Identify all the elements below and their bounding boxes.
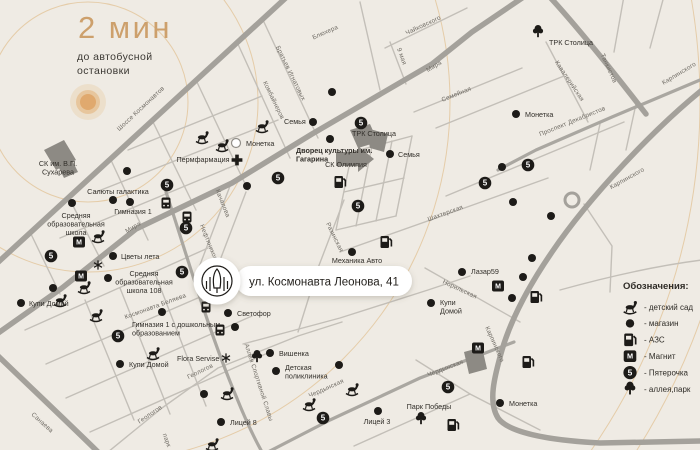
shop-dot-icon — [427, 299, 435, 307]
shop-dot-icon — [509, 198, 517, 206]
poi-name-label: ТРК Столица — [549, 38, 593, 47]
street-minor — [336, 216, 396, 230]
street-name-label: Семейная — [440, 85, 472, 104]
poi-name-label: Лицей 3 — [364, 417, 391, 426]
poi-name-label: Лицей 8 — [230, 418, 257, 427]
svg-text:М: М — [495, 283, 501, 290]
kindergarten-rocking-horse-icon — [78, 281, 91, 293]
pyaterochka-icon: 5 — [522, 159, 535, 172]
street-name-label: Блюхера — [311, 24, 339, 42]
walk-time-caption-line2: остановки — [77, 65, 130, 77]
gas-station-icon — [335, 176, 346, 188]
poi-name-label: Монетка — [525, 110, 553, 119]
kindergarten-rocking-horse-icon — [624, 301, 637, 314]
legend-title: Обозначения: — [623, 281, 689, 292]
shop-dot-icon — [224, 309, 232, 317]
pyaterochka-icon: 5 — [442, 381, 455, 394]
street-name-label: Мира — [425, 59, 443, 74]
svg-text:5: 5 — [116, 332, 121, 341]
shop-dot-icon — [109, 252, 117, 260]
street-name-label: 9 мая — [395, 47, 408, 66]
shop-dot-icon — [547, 212, 555, 220]
magnit-icon: М — [492, 281, 504, 292]
shop-dot-icon — [243, 182, 251, 190]
poi-name-label: Семья — [284, 117, 306, 126]
kindergarten-rocking-horse-icon — [147, 347, 160, 359]
shop-dot-icon — [528, 254, 536, 262]
road-main — [547, 0, 646, 114]
shop-dot-icon — [158, 308, 166, 316]
shop-dot-icon — [200, 390, 208, 398]
street-minor — [590, 124, 600, 170]
svg-text:5: 5 — [180, 268, 185, 277]
poi-name-label: Детскаяполиклиника — [285, 363, 328, 381]
street-minor — [650, 0, 664, 48]
kindergarten-rocking-horse-icon — [206, 438, 219, 450]
gas-station-icon — [523, 356, 534, 368]
svg-text:5: 5 — [359, 119, 364, 128]
street-name-label: Геологов — [137, 404, 164, 426]
shop-dot-icon — [126, 198, 134, 206]
svg-text:5: 5 — [321, 414, 326, 423]
walk-time-caption-line1: до автобусной — [77, 51, 152, 63]
pyaterochka-icon: 5 — [176, 266, 189, 279]
shop-dot-icon — [519, 273, 527, 281]
walk-time-badge: 2 мин до автобусной остановки — [70, 10, 172, 120]
walk-distance-map: Шоссе КосмонавтовМираМираБратьев Игнатов… — [0, 0, 700, 450]
pyaterochka-icon: 5 — [623, 366, 636, 379]
magnit-icon: М — [472, 343, 484, 354]
pyaterochka-icon: 5 — [355, 117, 368, 130]
legend-item: - аллея,парк — [625, 382, 691, 395]
shop-dot-icon — [266, 349, 274, 357]
street-name-label: Нефтяников — [198, 223, 219, 261]
shop-dot-icon — [309, 118, 317, 126]
legend-item: - магазин — [626, 319, 679, 328]
poi-name-label: Вишенка — [279, 349, 309, 358]
shop-dot-icon — [498, 163, 506, 171]
poi-name-label: СК Олимпия — [325, 160, 367, 169]
bus-stop-icon — [183, 212, 192, 223]
gas-station-icon — [448, 419, 459, 431]
street-minor — [446, 122, 624, 196]
shop-dot-icon — [17, 299, 25, 307]
magnit-icon: М — [73, 237, 85, 248]
svg-text:5: 5 — [165, 181, 170, 190]
poi-name-label: ТРК Столица — [352, 129, 396, 138]
shop-dot-icon — [104, 274, 112, 282]
map-legend: Обозначения: - детский сад- магазин- АЗС… — [623, 281, 693, 394]
poi-name-label: Средняяобразовательнаяшкола — [47, 211, 105, 237]
poi-name-label: КупиДомой — [440, 298, 462, 316]
park-tree-icon — [533, 25, 543, 37]
street-name-label: Чайковского — [404, 13, 442, 37]
street-name-label: Кавалерийская — [553, 59, 586, 103]
shop-dot-icon — [49, 284, 57, 292]
svg-text:5: 5 — [446, 383, 451, 392]
poi-name-label: Средняяобразовательнаяшкола 108 — [115, 269, 173, 295]
legend-item-label: - аллея,парк — [644, 385, 691, 394]
bus-stop-icon — [162, 198, 171, 209]
poi-name-label: Flora Servise — [177, 354, 219, 363]
poi-name-label: Лазар59 — [471, 267, 499, 276]
legend-item-label: - магазин — [644, 319, 679, 328]
svg-text:5: 5 — [483, 179, 488, 188]
svg-text:5: 5 — [49, 252, 54, 261]
shop-dot-icon — [68, 199, 76, 207]
shop-dot-icon — [335, 361, 343, 369]
street-minor — [584, 204, 612, 292]
poi-name-label: Купи Домой — [129, 360, 169, 369]
gas-station-icon — [381, 236, 392, 248]
map-canvas: Шоссе КосмонавтовМираМираБратьев Игнатов… — [0, 0, 700, 450]
street-labels: Шоссе КосмонавтовМираМираБратьев Игнатов… — [30, 13, 698, 448]
pyaterochka-icon: 5 — [180, 222, 193, 235]
pyaterochka-icon: 5 — [352, 200, 365, 213]
poi-name-label: Салюты галактика — [87, 187, 149, 196]
shop-dot-icon — [231, 323, 239, 331]
magnit-icon: М — [75, 271, 87, 282]
pharmacy-cross-icon — [232, 155, 243, 166]
pyaterochka-icon: 5 — [272, 172, 285, 185]
shop-dot-icon — [508, 294, 516, 302]
pyaterochka-icon: 5 — [45, 250, 58, 263]
pyaterochka-icon: 5 — [112, 330, 125, 343]
shop-dot-icon — [496, 399, 504, 407]
shop-dot-icon — [328, 88, 336, 96]
kindergarten-rocking-horse-icon — [196, 131, 209, 143]
svg-text:М: М — [475, 345, 481, 352]
street-name-label: Братьев Игнатовых — [274, 45, 307, 103]
shop-dot-icon — [458, 268, 466, 276]
legend-item-label: - Пятерочка — [644, 368, 689, 377]
svg-text:М: М — [78, 273, 84, 280]
poi-name-label: Пермфармация — [177, 155, 230, 164]
gas-station-icon — [624, 334, 635, 347]
street-minor — [436, 76, 564, 128]
street-name-label: Танкистов — [599, 53, 618, 85]
street-name-label: Комбайнеров — [261, 80, 287, 121]
shop-dot-icon — [272, 367, 280, 375]
shop-dot-icon — [217, 418, 225, 426]
shop-dot-icon — [123, 167, 131, 175]
legend-item: - АЗС — [624, 334, 665, 347]
shop-open-dot-icon — [232, 139, 241, 148]
shop-dot-icon — [116, 360, 124, 368]
poi-name-label: Гимназия 1 с дошкольнымобразованием — [132, 320, 220, 338]
svg-text:М: М — [627, 352, 633, 361]
pyaterochka-icon: 5 — [317, 412, 330, 425]
poi-name-label: Парк Победы — [407, 402, 452, 411]
street-name-label: Карпинского — [609, 166, 646, 191]
svg-text:5: 5 — [628, 367, 633, 377]
poi-name-label: Купи Домой — [29, 299, 69, 308]
street-minor — [360, 2, 380, 90]
street-name-label: парк — [161, 433, 172, 449]
street-name-label: Шахтерская — [427, 204, 464, 223]
svg-text:5: 5 — [526, 161, 531, 170]
kindergarten-rocking-horse-icon — [256, 120, 269, 132]
shop-dot-icon — [626, 319, 634, 327]
road-main — [0, 352, 98, 450]
legend-item-label: - Магнит — [644, 352, 676, 361]
roundabout — [565, 193, 579, 207]
poi-name-label: Гимназия 1 — [114, 207, 152, 216]
street-minor — [396, 136, 412, 216]
svg-text:М: М — [76, 239, 82, 246]
bus-stop-point — [80, 94, 96, 110]
shop-dot-icon — [326, 135, 334, 143]
shop-dot-icon — [374, 407, 382, 415]
poi-name-label: Цветы лета — [121, 252, 159, 261]
street-name-label: Санаева — [30, 411, 55, 434]
legend-item-label: - АЗС — [644, 336, 665, 345]
poi-name-label: Монетка — [246, 139, 274, 148]
shop-dot-icon — [348, 248, 356, 256]
legend-item-label: - детский сад — [644, 303, 693, 312]
pyaterochka-icon: 5 — [161, 179, 174, 192]
street-name-label: Чердынская — [308, 378, 345, 400]
walk-time-value: 2 мин — [78, 10, 172, 45]
kindergarten-rocking-horse-icon — [221, 387, 234, 399]
magnit-icon: М — [624, 350, 637, 362]
street-minor — [614, 0, 624, 52]
shop-dot-icon — [386, 150, 394, 158]
kindergarten-rocking-horse-icon — [346, 383, 359, 395]
svg-text:5: 5 — [356, 202, 361, 211]
poi-name-label: Монетка — [509, 399, 537, 408]
street-minor — [344, 178, 404, 192]
legend-item: 5- Пятерочка — [623, 366, 688, 379]
shop-dot-icon — [512, 110, 520, 118]
pyaterochka-icon: 5 — [479, 177, 492, 190]
poi-name-label: Механика Авто — [332, 256, 382, 265]
svg-text:5: 5 — [184, 224, 189, 233]
shop-dot-icon — [109, 196, 117, 204]
callout-logo-disc — [194, 258, 241, 305]
gas-station-icon — [531, 291, 542, 303]
poi-name-label: СК им. В.П.Сухарева — [39, 159, 77, 177]
legend-item: М- Магнит — [624, 350, 676, 362]
address-callout-text: ул. Космонавта Леонова, 41 — [249, 277, 399, 289]
street-name-label: Шоссе Космонавтов — [116, 85, 167, 133]
street-medium — [498, 80, 700, 170]
street-name-label: Чердынская — [427, 359, 465, 379]
kindergarten-rocking-horse-icon — [303, 398, 316, 410]
poi-name-label: Семья — [398, 150, 420, 159]
legend-item: - детский сад — [624, 301, 694, 314]
kindergarten-rocking-horse-icon — [92, 230, 105, 242]
svg-text:5: 5 — [276, 174, 281, 183]
poi-name-label: Светофор — [237, 309, 271, 318]
